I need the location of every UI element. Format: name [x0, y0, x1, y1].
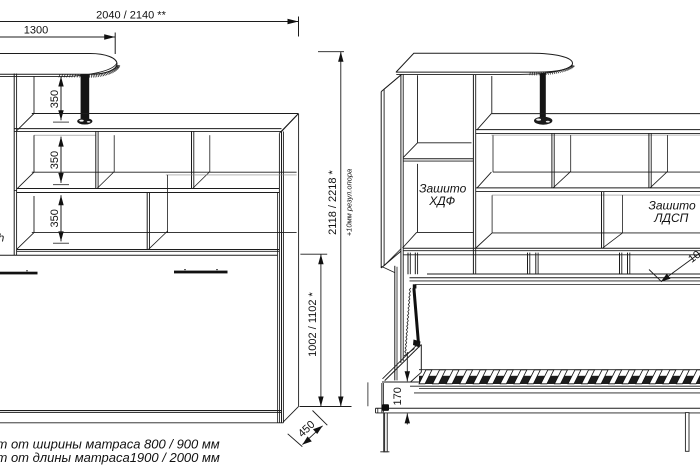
svg-text:350: 350 — [49, 209, 61, 227]
svg-text:ХДФ: ХДФ — [428, 194, 455, 208]
svg-text:350: 350 — [49, 151, 61, 169]
svg-text:170: 170 — [392, 387, 404, 405]
svg-text:1002 / 1102 *: 1002 / 1102 * — [307, 291, 319, 356]
svg-text:2040 / 2140 **: 2040 / 2140 ** — [96, 10, 166, 22]
svg-text:2118 / 2218 *: 2118 / 2218 * — [327, 169, 339, 234]
svg-text:т от длины матраса1900 / 2000: т от длины матраса1900 / 2000 мм — [0, 450, 220, 465]
svg-text:ЛДСП: ЛДСП — [653, 211, 688, 225]
svg-text:1300: 1300 — [24, 25, 48, 37]
svg-text:h: h — [0, 233, 4, 245]
svg-text:+10мм резул.опора: +10мм резул.опора — [345, 169, 354, 236]
svg-text:350: 350 — [49, 90, 61, 108]
